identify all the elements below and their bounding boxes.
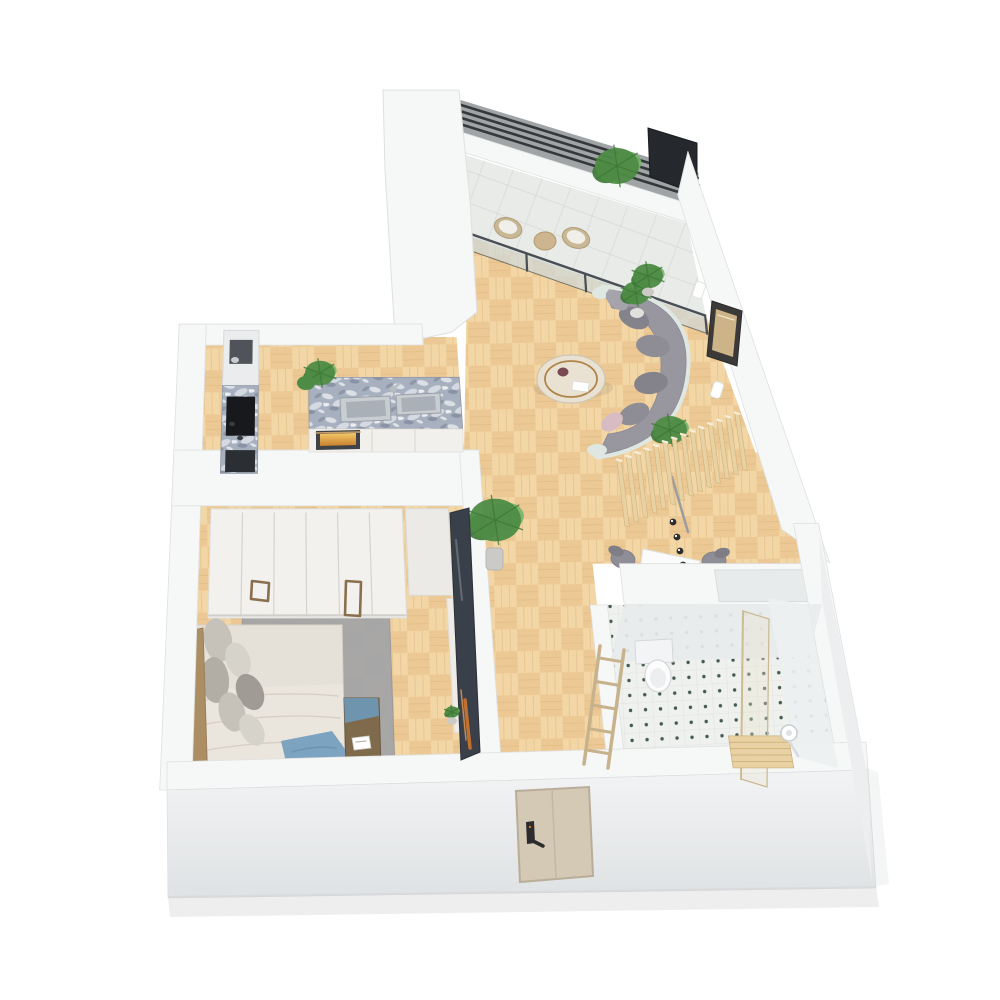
slat-top	[663, 441, 668, 442]
console-plant-pot	[447, 717, 457, 725]
pendant-light	[670, 519, 677, 526]
wood-shower-mat	[728, 736, 793, 768]
slat-top	[654, 445, 659, 446]
glass-door-mullion	[585, 274, 586, 292]
shower-head-center	[786, 730, 792, 736]
pendant-light-glint	[671, 520, 673, 522]
cooktop	[226, 397, 255, 436]
slat-top	[626, 456, 631, 457]
wardrobe	[208, 509, 407, 618]
slat-top	[726, 416, 731, 417]
slat-top	[644, 448, 649, 449]
pendant-light	[677, 548, 684, 555]
side-cabinet	[405, 509, 453, 596]
cooktop-knob	[229, 422, 235, 426]
slat-top	[735, 413, 740, 414]
bench-magazine	[352, 736, 371, 750]
kitchen-sink-basin	[346, 400, 386, 418]
bathroom-wall-niche	[715, 570, 812, 602]
sofa-plant-pot	[630, 308, 644, 318]
slat-top	[690, 430, 695, 431]
slat-top	[717, 420, 722, 421]
dishwasher	[225, 450, 255, 472]
bedroom-divider-wall	[172, 450, 483, 506]
kitchen-top-wall	[178, 324, 423, 345]
coffee-machine-top	[231, 357, 239, 363]
slat-top	[708, 423, 713, 424]
oven-window	[320, 433, 356, 446]
round-coffee-table	[537, 355, 605, 403]
slat-top	[699, 427, 704, 428]
pendant-light	[674, 534, 681, 541]
wall-art-picture	[712, 309, 737, 357]
slat-top	[617, 459, 622, 460]
console-plant-frond	[451, 705, 452, 712]
slat-top	[681, 434, 686, 435]
coffee-table-book	[572, 381, 589, 392]
door-lock-light	[529, 826, 531, 828]
round-side-table	[534, 232, 556, 250]
coffee-table-plant	[558, 368, 569, 377]
oven-handle	[316, 432, 360, 433]
slat-top	[672, 438, 677, 439]
pendant-light-glint	[675, 535, 677, 537]
glass-door-mullion	[526, 253, 527, 270]
island-potted-plant	[297, 376, 315, 390]
hallway-palm-pot	[486, 548, 503, 570]
kitchen-sink-basin	[401, 396, 436, 412]
floor-plan-render	[0, 0, 1000, 1000]
upper-left-wall	[383, 90, 477, 338]
cooktop-knob	[237, 436, 243, 440]
floor-plan-svg	[0, 0, 1000, 1000]
corner-plant-pot	[642, 288, 654, 297]
sofa-arm	[587, 444, 607, 456]
pendant-light-glint	[678, 549, 680, 551]
wardrobe-seam	[306, 513, 307, 614]
slat-top	[635, 452, 640, 453]
